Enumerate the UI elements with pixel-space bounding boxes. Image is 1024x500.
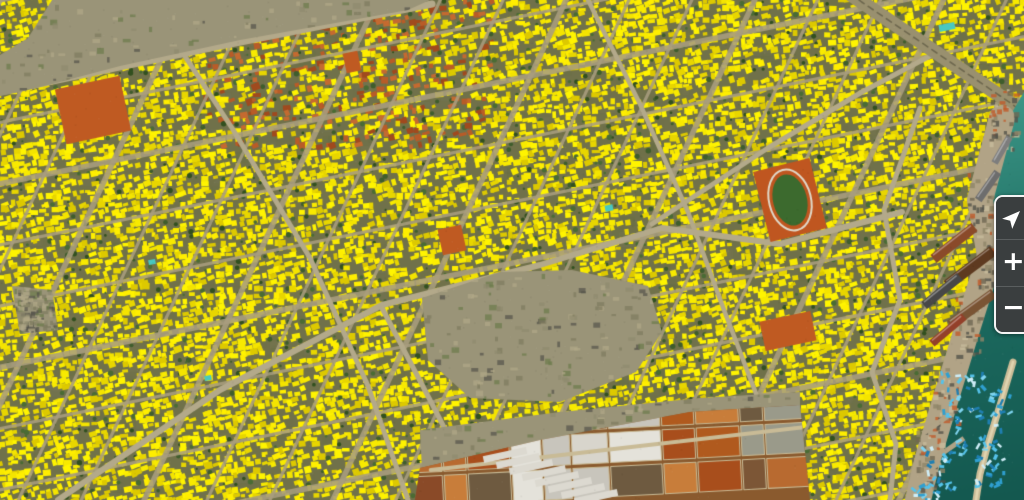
map-controls: + − [994,195,1024,334]
locate-button[interactable] [996,197,1024,240]
map-viewport: + − [0,0,1024,500]
zoom-out-button[interactable]: − [996,287,1024,332]
satellite-map-canvas[interactable] [0,0,1024,500]
navigation-arrow-icon [1002,207,1024,229]
zoom-in-button[interactable]: + [996,240,1024,286]
